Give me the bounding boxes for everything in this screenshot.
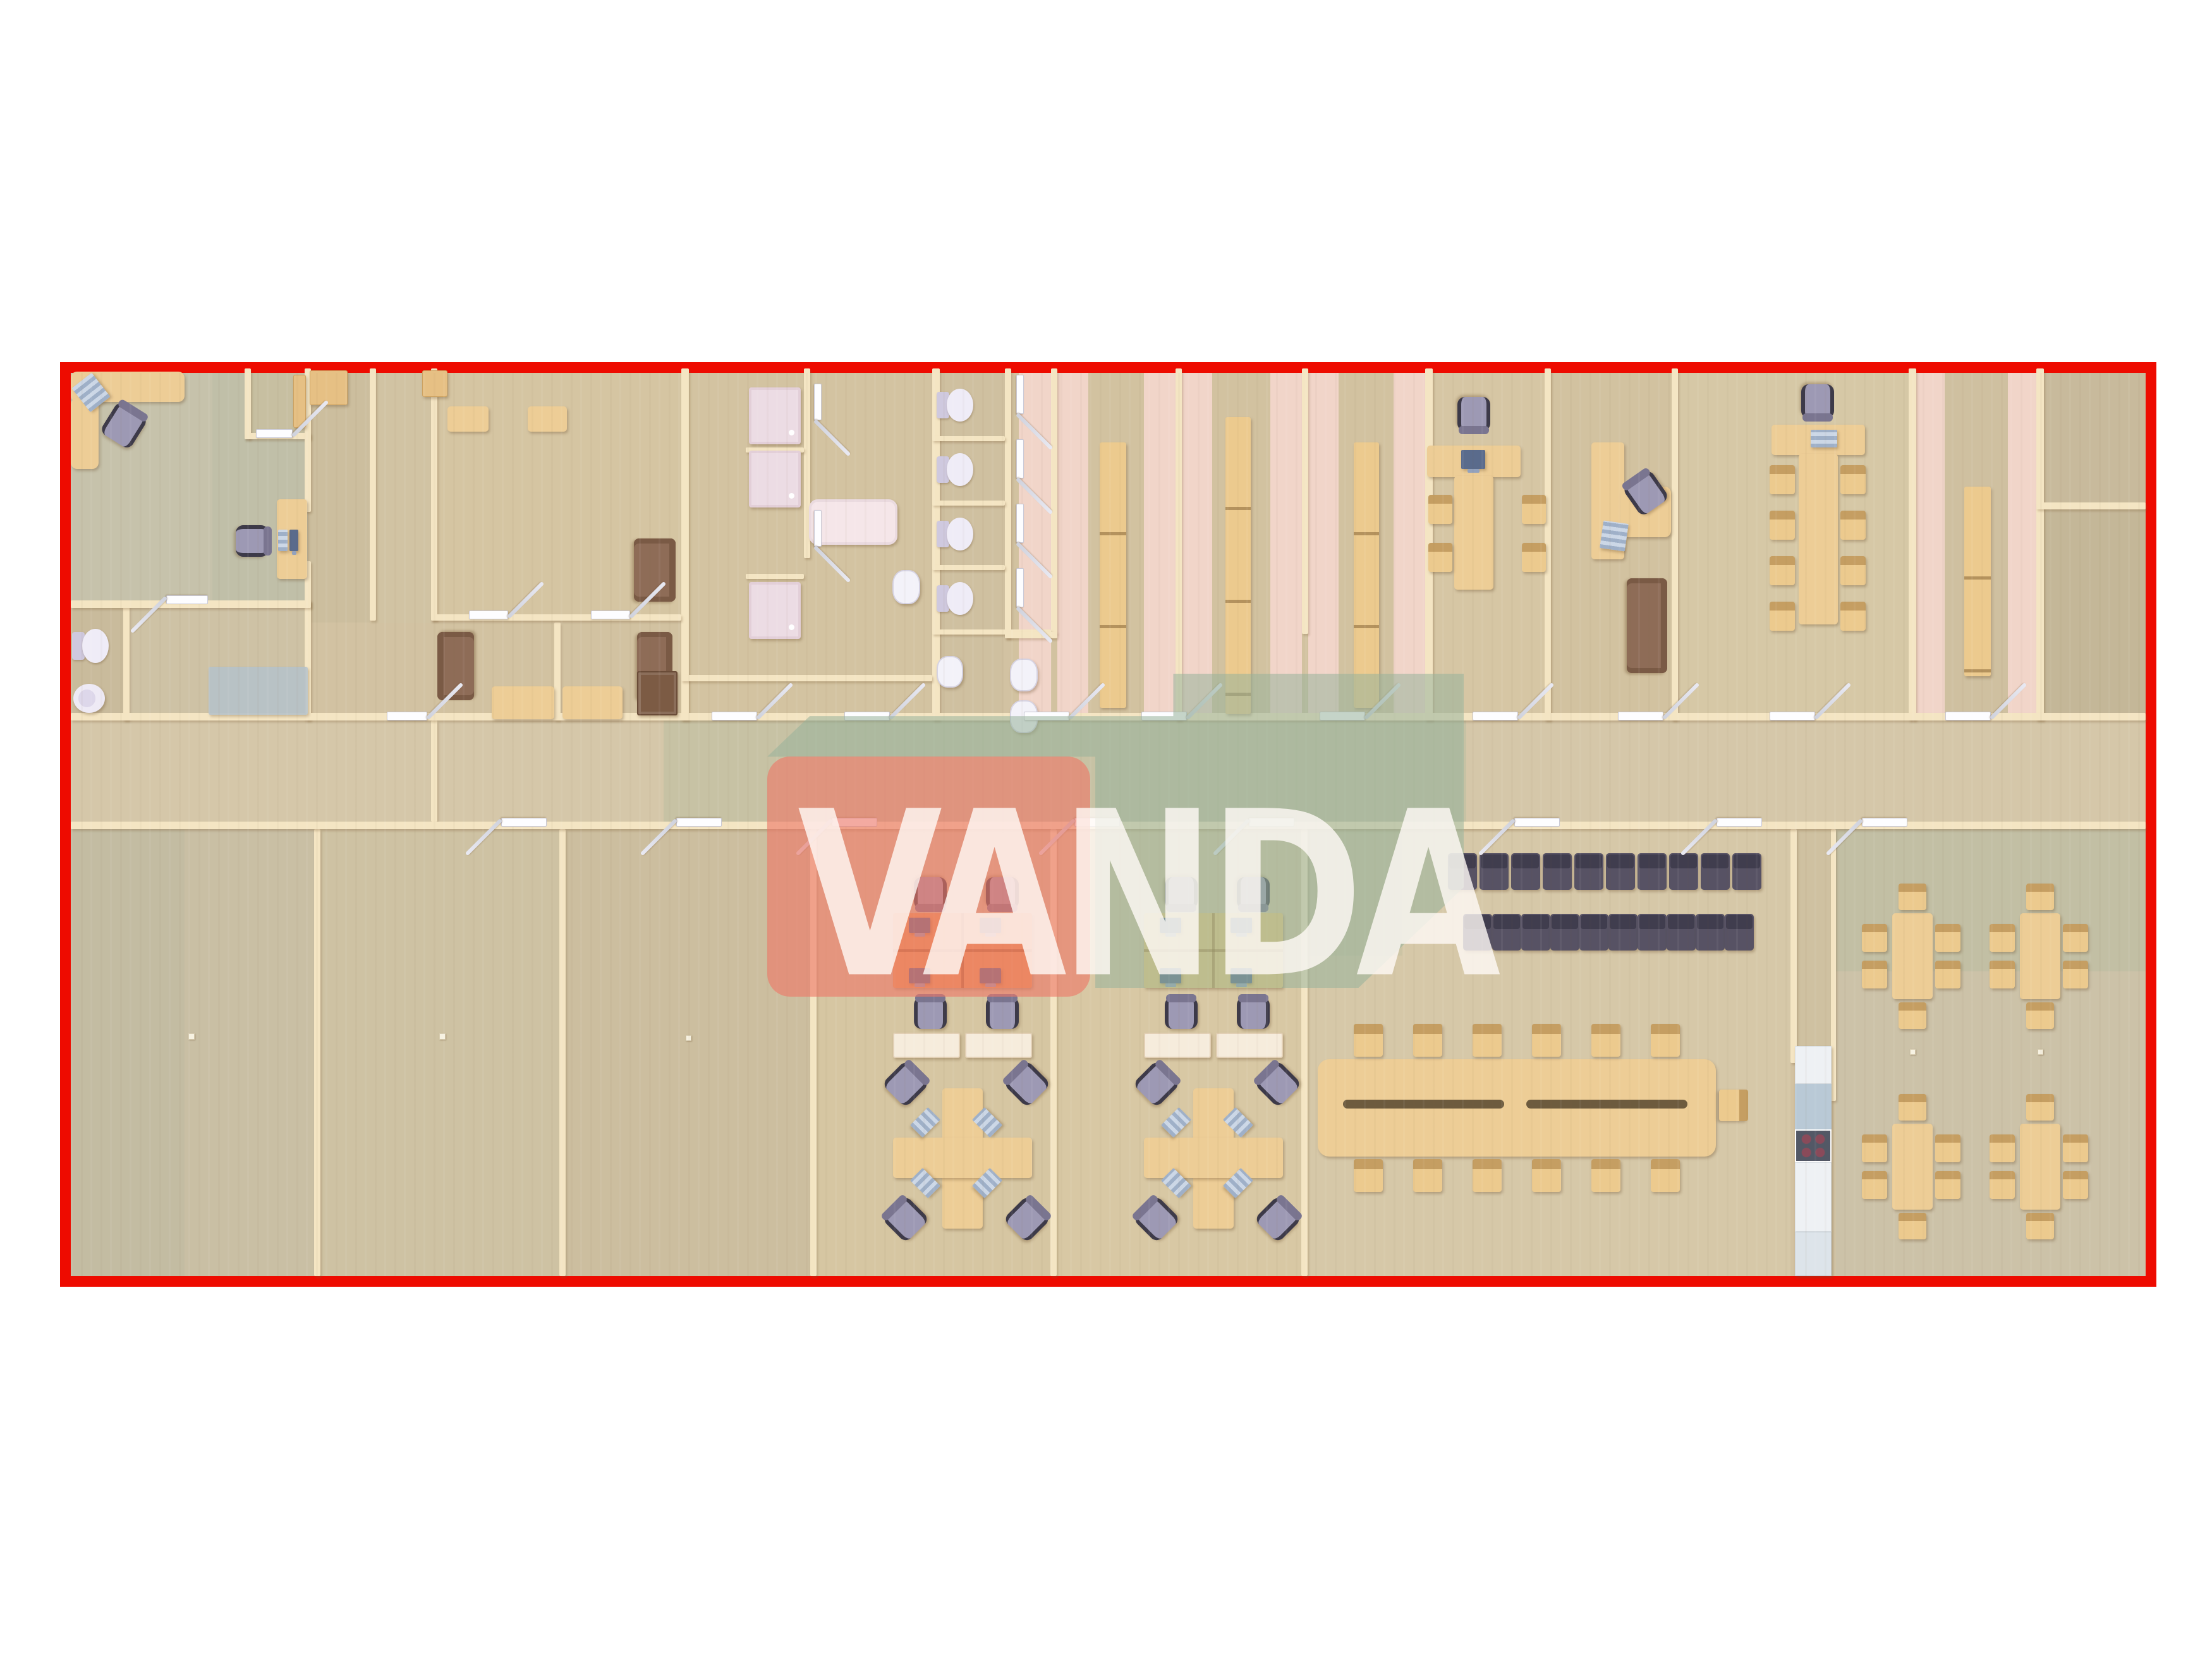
dark-chair — [1732, 853, 1761, 890]
wall — [746, 574, 804, 579]
side-chair — [1862, 1134, 1887, 1162]
wall — [932, 436, 1005, 441]
wall — [1301, 829, 1308, 1276]
door-leaf — [1141, 712, 1187, 720]
door-leaf — [1473, 712, 1518, 720]
laptop — [278, 530, 288, 551]
side-chair — [1413, 1159, 1442, 1192]
wc-toilet — [937, 453, 973, 486]
side-chair — [1651, 1159, 1680, 1192]
wall — [1302, 368, 1308, 634]
side-chair — [1428, 543, 1452, 572]
side-chair — [1522, 495, 1546, 524]
ceiling-dot — [188, 1033, 195, 1040]
stove — [1795, 1129, 1832, 1162]
side-chair — [2026, 1213, 2054, 1239]
ceiling-dot — [1910, 1049, 1916, 1055]
dark-chair — [1574, 853, 1603, 890]
side-chair — [1935, 961, 1960, 988]
office-chair — [1457, 397, 1490, 431]
side-chair — [1413, 1024, 1442, 1057]
wall — [932, 501, 1005, 506]
cable-slot — [1343, 1100, 1504, 1109]
wall — [2036, 368, 2044, 720]
side-chair — [2026, 1002, 2054, 1029]
room-office-3 — [1679, 373, 1909, 714]
table — [1892, 1124, 1933, 1210]
monitor — [909, 918, 930, 933]
room-right-1 — [2044, 373, 2146, 502]
side-chair — [1522, 543, 1546, 572]
side-chair — [1935, 1134, 1960, 1162]
side-chair — [1473, 1024, 1502, 1057]
office-chair — [914, 997, 947, 1029]
floor-plan — [0, 0, 2212, 1659]
door — [1018, 568, 1024, 606]
side-chair — [1591, 1159, 1620, 1192]
door-leaf — [1618, 712, 1663, 720]
wall — [810, 829, 817, 1276]
monitor — [980, 968, 1001, 983]
dark-chair — [1638, 853, 1667, 890]
room-empty-1 — [71, 829, 314, 1276]
wall — [431, 368, 437, 621]
door — [591, 611, 629, 618]
side-chair — [1591, 1024, 1620, 1057]
side-chair — [1840, 511, 1866, 540]
bench — [1964, 487, 1991, 676]
wall — [245, 368, 251, 439]
laptop — [1811, 430, 1837, 447]
monitor — [1160, 968, 1181, 983]
door-leaf — [712, 712, 757, 720]
side-chair — [1899, 1002, 1926, 1029]
wardrobe — [637, 671, 678, 715]
wall — [370, 368, 376, 621]
ceiling-dot — [2038, 1049, 2043, 1055]
sink — [892, 570, 920, 604]
door-leaf — [591, 611, 630, 619]
door — [815, 384, 822, 419]
wall — [1176, 368, 1182, 720]
door — [1618, 712, 1662, 719]
table — [562, 686, 623, 719]
sink — [937, 656, 963, 688]
door — [502, 819, 547, 827]
side-chair — [2063, 1171, 2088, 1199]
side-chair — [2026, 1094, 2054, 1121]
office-chair — [914, 877, 947, 909]
door — [1018, 504, 1024, 542]
side-chair — [1840, 556, 1866, 585]
side-chair — [1899, 1094, 1926, 1121]
side-chair — [1770, 511, 1795, 540]
sofa — [1627, 578, 1667, 673]
dark-chair — [1511, 853, 1540, 890]
side-chair — [1990, 1134, 2015, 1162]
door-leaf — [814, 510, 822, 547]
door-leaf — [1074, 818, 1120, 827]
wall — [1790, 829, 1797, 1063]
wall — [681, 675, 932, 681]
laptop — [1600, 520, 1629, 551]
door — [1018, 439, 1024, 477]
cabinet — [293, 375, 306, 428]
dark-chair — [1667, 914, 1696, 951]
door — [1018, 375, 1024, 413]
side-chair — [1990, 961, 2015, 988]
wall — [71, 713, 2146, 720]
office-chair — [236, 525, 269, 557]
side-chair — [1935, 1171, 1960, 1199]
office-chair — [986, 877, 1019, 909]
dark-chair — [1638, 914, 1667, 951]
monitor — [289, 530, 298, 551]
wall — [314, 829, 320, 1276]
dark-chair — [1480, 853, 1509, 890]
kitchen-window — [1795, 1084, 1832, 1129]
side-chair — [1770, 602, 1795, 631]
credenza — [1216, 1033, 1283, 1058]
dark-chair — [1448, 853, 1477, 890]
room-empty-2 — [320, 829, 559, 1276]
cabinet — [310, 370, 348, 405]
door-leaf — [1016, 568, 1024, 607]
wall — [2036, 502, 2146, 509]
stripe — [2008, 373, 2036, 714]
door-leaf — [1945, 712, 1991, 720]
door-leaf — [256, 429, 293, 438]
table — [2020, 913, 2060, 999]
door-leaf — [469, 611, 508, 619]
side-chair — [1532, 1159, 1561, 1192]
shower — [749, 451, 801, 507]
office-chair — [1237, 997, 1270, 1029]
wall — [1005, 368, 1011, 638]
bench — [1225, 417, 1251, 714]
room-empty-3 — [566, 829, 810, 1276]
credenza — [965, 1033, 1032, 1058]
dark-chair — [1696, 914, 1725, 951]
door — [1863, 819, 1907, 827]
room-right-2 — [2044, 509, 2146, 714]
door — [815, 510, 822, 545]
door — [1516, 819, 1560, 827]
desk — [1144, 1138, 1283, 1178]
mat — [209, 667, 308, 715]
side-chair — [1651, 1024, 1680, 1057]
dark-chair — [1543, 853, 1572, 890]
shower — [749, 582, 801, 639]
door — [1250, 819, 1294, 827]
door-leaf — [1717, 818, 1762, 827]
side-chair — [1840, 465, 1866, 494]
side-chair — [1862, 961, 1887, 988]
wall — [123, 600, 130, 720]
door — [387, 712, 426, 719]
table — [528, 406, 567, 432]
bench — [1100, 442, 1126, 708]
dark-chair — [1725, 914, 1754, 951]
floor-plan-render: VANDA — [0, 0, 2212, 1659]
wall — [1050, 829, 1057, 1276]
wc-toilet — [72, 629, 109, 663]
dark-chair — [1669, 853, 1698, 890]
side-chair — [1532, 1024, 1561, 1057]
door — [1024, 712, 1068, 719]
door-leaf — [1320, 712, 1365, 720]
stripe — [1182, 373, 1212, 714]
monitor — [1160, 918, 1181, 933]
stripe — [1270, 373, 1302, 714]
door-leaf — [166, 595, 208, 604]
office-chair — [1165, 877, 1198, 909]
room-a — [373, 373, 431, 623]
wc-toilet — [937, 518, 973, 550]
wall — [1831, 829, 1836, 1101]
side-chair — [2063, 924, 2088, 952]
dark-chair — [1521, 914, 1550, 951]
cable-slot — [1526, 1100, 1687, 1109]
dark-chair — [1550, 914, 1579, 951]
door-leaf — [1016, 439, 1024, 478]
side-chair — [1770, 465, 1795, 494]
door-leaf — [832, 818, 877, 827]
door — [1076, 819, 1120, 827]
dark-chair — [1701, 853, 1730, 890]
door — [167, 597, 208, 604]
door-leaf — [501, 818, 547, 827]
monitor — [1231, 968, 1252, 983]
credenza — [893, 1033, 960, 1058]
ceiling-dot — [439, 1033, 446, 1040]
door-leaf — [1016, 375, 1024, 414]
bidet — [73, 684, 105, 713]
office-chair — [1165, 997, 1198, 1029]
kitchen-unit2 — [1795, 1232, 1832, 1276]
door-leaf — [844, 712, 890, 720]
wall — [1672, 368, 1678, 720]
corridor — [71, 720, 2146, 822]
door — [1141, 712, 1186, 719]
door — [1770, 712, 1814, 719]
stripe — [1057, 373, 1088, 714]
side-chair — [1428, 495, 1452, 524]
side-chair — [1354, 1024, 1383, 1057]
side-chair — [2063, 961, 2088, 988]
monitor — [1231, 918, 1252, 933]
door — [833, 819, 877, 827]
side-chair — [1770, 556, 1795, 585]
wall — [932, 565, 1005, 570]
side-chair — [1354, 1159, 1383, 1192]
cabinet — [422, 370, 447, 397]
door-leaf — [1514, 818, 1560, 827]
monitor — [909, 968, 930, 983]
side-chair — [1719, 1090, 1748, 1121]
table — [492, 686, 554, 719]
door-leaf — [1016, 504, 1024, 543]
door-leaf — [1770, 712, 1815, 720]
door — [844, 712, 889, 719]
door — [1718, 819, 1762, 827]
door — [256, 429, 291, 437]
desk — [893, 1138, 1032, 1178]
table — [2020, 1124, 2060, 1210]
dark-chair — [1463, 914, 1492, 951]
kitchen-unit — [1795, 1162, 1832, 1232]
room-dining — [1836, 829, 2146, 1276]
monitor — [1461, 450, 1485, 469]
door — [678, 819, 722, 827]
door — [712, 712, 756, 719]
side-chair — [1862, 1171, 1887, 1199]
dark-chair — [1492, 914, 1521, 951]
door — [1320, 712, 1364, 719]
wc-toilet — [937, 582, 973, 615]
bench — [1354, 442, 1379, 708]
side-chair — [2026, 884, 2054, 910]
door — [1473, 712, 1517, 719]
monitor — [980, 918, 1001, 933]
office-chair — [1801, 384, 1834, 418]
stripe — [1308, 373, 1339, 714]
dark-chair — [1579, 914, 1608, 951]
kitchen-unit — [1795, 1046, 1832, 1084]
side-chair — [1473, 1159, 1502, 1192]
door — [469, 611, 507, 618]
side-chair — [1990, 1171, 2015, 1199]
door-leaf — [814, 384, 822, 420]
dark-chair — [1608, 914, 1638, 951]
door-leaf — [676, 818, 722, 827]
wall — [1051, 368, 1057, 634]
wall — [1909, 368, 1916, 720]
stripe — [1916, 373, 1945, 714]
side-chair — [1935, 924, 1960, 952]
side-chair — [2063, 1134, 2088, 1162]
bathtub — [809, 499, 897, 545]
stripe — [1394, 373, 1425, 714]
wall — [431, 720, 437, 822]
stripe — [1144, 373, 1176, 714]
side-chair — [1862, 924, 1887, 952]
ceiling-dot — [686, 1035, 691, 1041]
door-leaf — [387, 712, 427, 720]
credenza — [1144, 1033, 1211, 1058]
dark-chair — [1606, 853, 1635, 890]
t-desk — [1454, 476, 1493, 590]
door-leaf — [1862, 818, 1907, 827]
shower — [749, 387, 801, 444]
office-chair — [1237, 877, 1270, 909]
door-leaf — [1024, 712, 1069, 720]
side-chair — [1840, 602, 1866, 631]
side-chair — [1899, 884, 1926, 910]
table — [447, 406, 489, 432]
wc-toilet — [937, 389, 973, 422]
side-chair — [1899, 1213, 1926, 1239]
side-chair — [1990, 924, 2015, 952]
wall — [681, 368, 689, 720]
office-chair — [986, 997, 1019, 1029]
door-leaf — [1249, 818, 1294, 827]
wall — [559, 829, 566, 1276]
sink — [1010, 659, 1038, 691]
wall — [554, 623, 561, 720]
table — [1892, 913, 1933, 999]
door — [1945, 712, 1990, 719]
t-desk — [1799, 454, 1838, 624]
